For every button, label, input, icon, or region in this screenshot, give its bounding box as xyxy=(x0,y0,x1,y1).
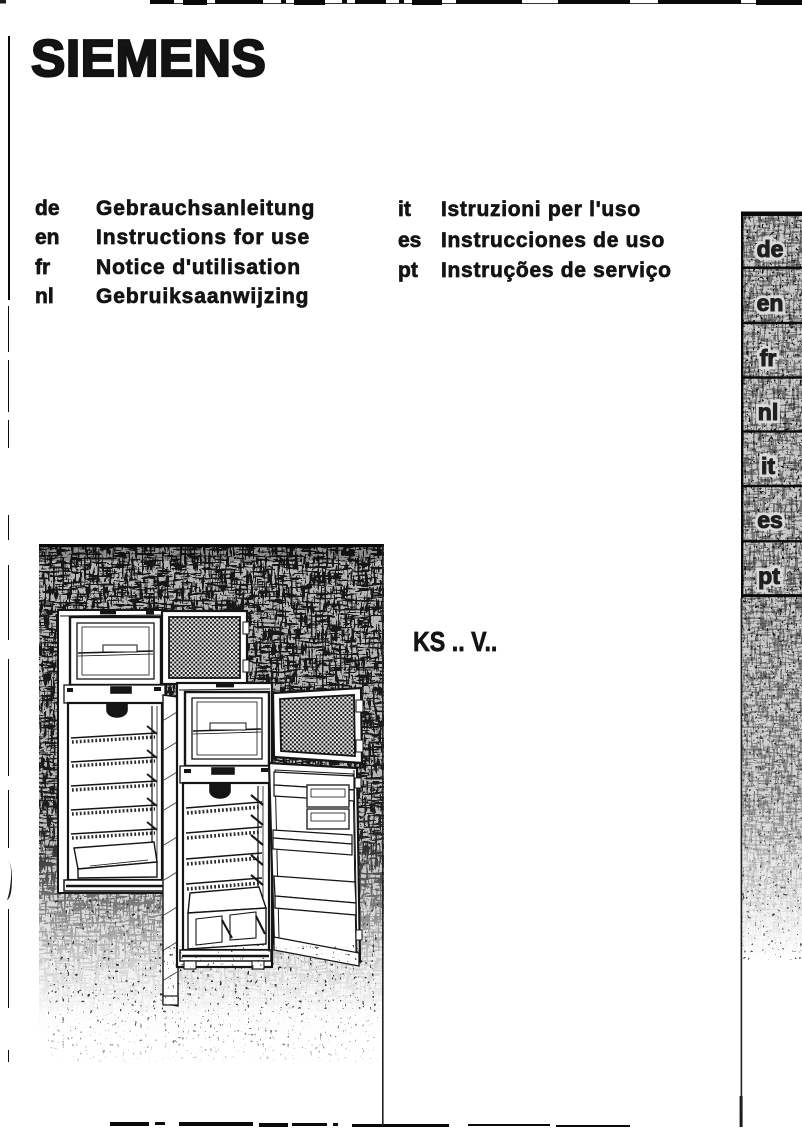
svg-text:de: de xyxy=(757,236,784,262)
svg-text:en: en xyxy=(757,290,784,316)
svg-text:it: it xyxy=(761,453,775,479)
svg-text:nl: nl xyxy=(758,399,778,425)
svg-text:pt: pt xyxy=(758,563,780,589)
svg-text:es: es xyxy=(757,507,783,533)
svg-text:fr: fr xyxy=(760,345,777,371)
